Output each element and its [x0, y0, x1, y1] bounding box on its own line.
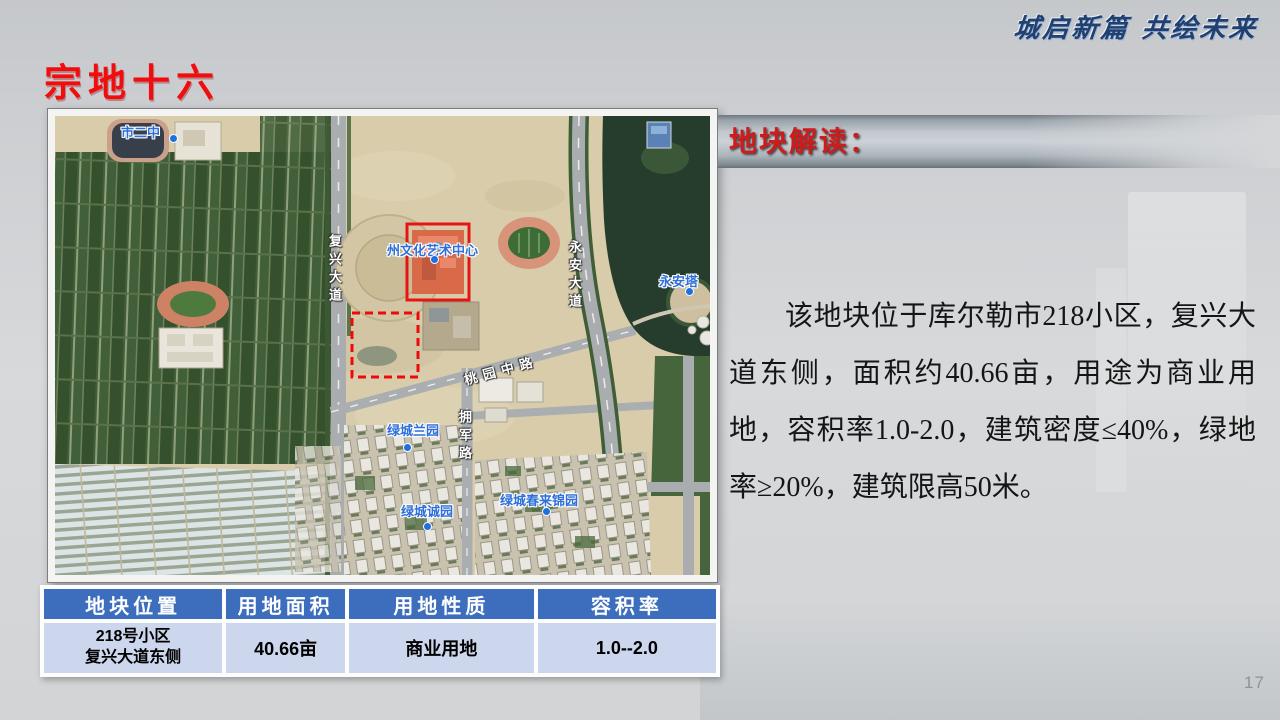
map-marker-chunlai-dot: [542, 507, 551, 516]
map-label-chunlai: 绿城春来锦园: [500, 490, 578, 509]
col-header-nature: 用地性质: [349, 589, 534, 619]
map-label-chengyuan: 绿城诚园: [401, 501, 453, 520]
table-header-row: 地块位置 用地面积 用地性质 容积率: [44, 589, 716, 619]
slide: 城启新篇 共绘未来 宗地十六: [0, 0, 1280, 720]
map-road-label-yongan: 永安大道: [565, 240, 584, 312]
table-row: 218号小区 复兴大道东侧 40.66亩 商业用地 1.0--2.0: [44, 623, 716, 673]
col-header-far: 容积率: [538, 589, 716, 619]
col-header-area: 用地面积: [226, 589, 345, 619]
slide-motto: 城启新篇 共绘未来: [1012, 8, 1260, 45]
cell-far: 1.0--2.0: [538, 623, 716, 673]
col-header-location: 地块位置: [44, 589, 222, 619]
map-label-school: 市二中: [121, 122, 160, 141]
analysis-body-text: 该地块位于库尔勒市218小区，复兴大道东侧，面积约40.66亩，用途为商业用地，…: [729, 288, 1256, 516]
analysis-header-bar: 地块解读：: [718, 115, 1280, 168]
parcel-info-table: 地块位置 用地面积 用地性质 容积率 218号小区 复兴大道东侧 40.66亩 …: [40, 585, 720, 677]
map-marker-art-center-dot: [430, 255, 439, 264]
map-marker-school-dot: [169, 134, 178, 143]
map-marker-chengyuan-dot: [423, 522, 432, 531]
map-label-lanyuan: 绿城兰园: [387, 420, 439, 439]
cell-location: 218号小区 复兴大道东侧: [44, 623, 222, 673]
analysis-header-text: 地块解读：: [718, 115, 879, 168]
page-title: 宗地十六: [44, 52, 220, 107]
location-line2: 复兴大道东侧: [85, 649, 181, 666]
map-marker-pagoda-dot: [685, 287, 694, 296]
map-road-label-yongjun: 拥军路: [455, 410, 474, 464]
map-road-label-fuxing: 复兴大道: [325, 234, 344, 306]
cell-area: 40.66亩: [226, 623, 345, 673]
satellite-map: 市二中 州文化艺术中心 永安塔 绿城兰园 绿城诚园 绿城春来锦园 复兴大道 永安…: [55, 116, 710, 575]
cell-nature: 商业用地: [349, 623, 534, 673]
map-marker-lanyuan-dot: [403, 443, 412, 452]
location-line1: 218号小区: [96, 628, 171, 645]
satellite-map-panel: 市二中 州文化艺术中心 永安塔 绿城兰园 绿城诚园 绿城春来锦园 复兴大道 永安…: [47, 108, 718, 583]
background-watermark-water: [700, 600, 1280, 720]
page-number: 17: [1244, 673, 1265, 693]
satellite-map-graphic: [55, 116, 710, 575]
